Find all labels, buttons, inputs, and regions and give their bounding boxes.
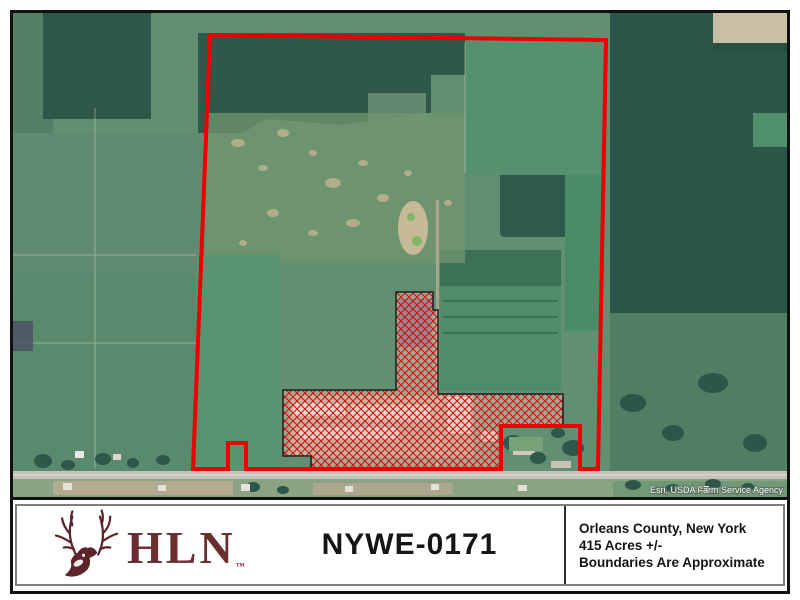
fields-right xyxy=(610,313,787,473)
pond-bare-area xyxy=(398,201,428,255)
listing-details: Orleans County, New York 415 Acres +/- B… xyxy=(564,506,783,584)
aerial-map: Esri, USDA Farm Service Agency xyxy=(13,13,787,500)
page-frame: Esri, USDA Farm Service Agency xyxy=(10,10,790,594)
disclaimer-line: Boundaries Are Approximate xyxy=(579,554,779,571)
aerial-map-image: Esri, USDA Farm Service Agency xyxy=(13,13,787,497)
acreage-line: 415 Acres +/- xyxy=(579,537,779,554)
listing-id-title: NYWE-0171 xyxy=(255,506,564,584)
road xyxy=(13,471,787,479)
footer-bar: HLN™ NYWE-0171 Orleans County, New York … xyxy=(15,504,785,586)
trademark-symbol: ™ xyxy=(236,561,245,571)
attribution-text: Esri, USDA Farm Service Agency xyxy=(650,485,784,495)
deer-head-icon xyxy=(41,508,133,582)
hln-logo: HLN™ xyxy=(17,506,255,584)
hln-logo-text: HLN™ xyxy=(127,525,245,571)
county-line: Orleans County, New York xyxy=(579,520,779,537)
